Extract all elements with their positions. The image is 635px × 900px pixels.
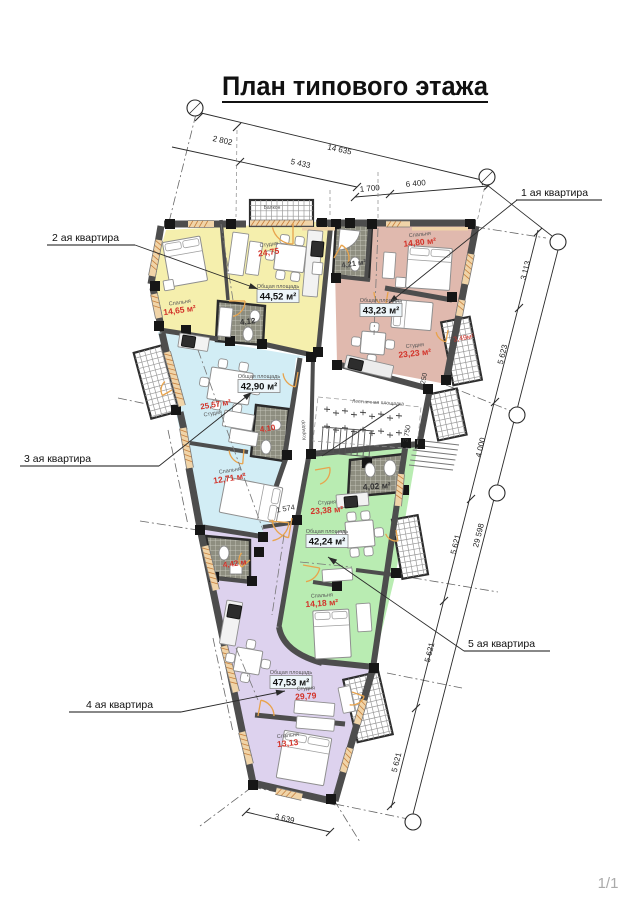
svg-text:14 635: 14 635 [327, 143, 353, 157]
svg-text:План типового этажа: План типового этажа [222, 71, 489, 101]
svg-text:4,12: 4,12 [240, 316, 257, 327]
svg-text:1/1: 1/1 [598, 875, 619, 892]
svg-text:5 433: 5 433 [290, 157, 312, 170]
svg-text:4,02 м²: 4,02 м² [362, 480, 391, 492]
svg-text:1 700: 1 700 [359, 183, 380, 194]
svg-text:3 ая квартира: 3 ая квартира [24, 453, 91, 465]
svg-text:1 ая квартира: 1 ая квартира [521, 187, 588, 199]
svg-text:250: 250 [420, 372, 429, 385]
svg-text:Балкон: Балкон [264, 205, 281, 211]
svg-text:3 113: 3 113 [519, 259, 533, 281]
svg-text:3 639: 3 639 [274, 812, 296, 825]
svg-text:Общая площадь: Общая площадь [306, 529, 349, 535]
svg-text:29 598: 29 598 [471, 522, 486, 548]
svg-text:5 623: 5 623 [496, 343, 510, 365]
svg-text:5 ая квартира: 5 ая квартира [468, 638, 535, 650]
svg-text:44,52 м²: 44,52 м² [260, 292, 297, 303]
svg-text:43,23 м²: 43,23 м² [363, 306, 400, 317]
svg-text:5 621: 5 621 [423, 641, 437, 663]
svg-text:4 ая квартира: 4 ая квартира [86, 699, 153, 711]
svg-text:4 000: 4 000 [474, 436, 488, 458]
svg-text:2 ая квартира: 2 ая квартира [52, 232, 119, 244]
svg-text:42,24 м²: 42,24 м² [309, 537, 346, 548]
svg-text:29,79: 29,79 [295, 690, 317, 701]
svg-text:5 621: 5 621 [390, 751, 404, 773]
svg-text:Общая площадь: Общая площадь [270, 670, 313, 676]
svg-text:42,90 м²: 42,90 м² [241, 382, 278, 393]
svg-text:6 400: 6 400 [405, 178, 426, 189]
svg-text:2 802: 2 802 [212, 134, 234, 147]
svg-text:5 621: 5 621 [449, 533, 463, 555]
